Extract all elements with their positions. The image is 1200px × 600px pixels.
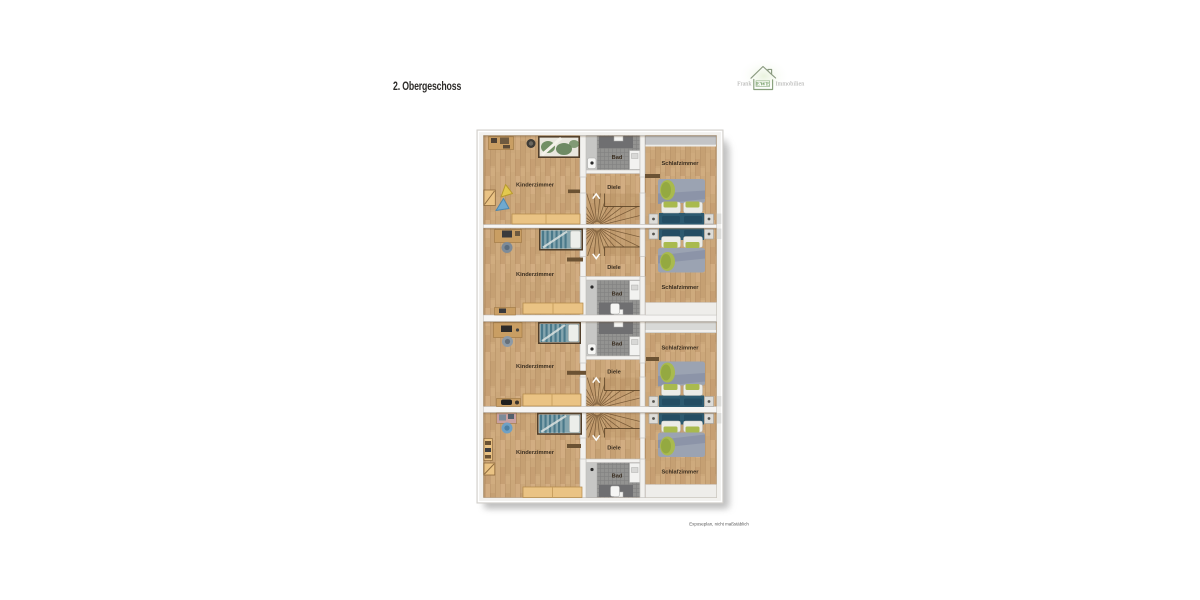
svg-text:Diele: Diele bbox=[607, 446, 621, 452]
svg-text:Diele: Diele bbox=[607, 370, 621, 376]
svg-text:Exposeplan, nicht maßstäblich: Exposeplan, nicht maßstäblich bbox=[689, 522, 749, 527]
svg-text:Kinderzimmer: Kinderzimmer bbox=[516, 450, 555, 456]
svg-text:Bad: Bad bbox=[612, 474, 623, 480]
svg-text:Diele: Diele bbox=[607, 265, 621, 271]
svg-text:Schlafzimmer: Schlafzimmer bbox=[662, 161, 700, 167]
svg-text:Schlafzimmer: Schlafzimmer bbox=[662, 470, 700, 476]
svg-text:Kinderzimmer: Kinderzimmer bbox=[516, 364, 555, 370]
svg-text:Diele: Diele bbox=[607, 185, 621, 191]
svg-text:Schlafzimmer: Schlafzimmer bbox=[662, 346, 700, 352]
svg-text:Bad: Bad bbox=[612, 342, 623, 348]
svg-text:Schlafzimmer: Schlafzimmer bbox=[662, 285, 700, 291]
svg-text:Kinderzimmer: Kinderzimmer bbox=[516, 183, 555, 189]
svg-text:Kinderzimmer: Kinderzimmer bbox=[516, 272, 555, 278]
svg-text:Bad: Bad bbox=[612, 292, 623, 298]
svg-text:Bad: Bad bbox=[612, 155, 623, 161]
